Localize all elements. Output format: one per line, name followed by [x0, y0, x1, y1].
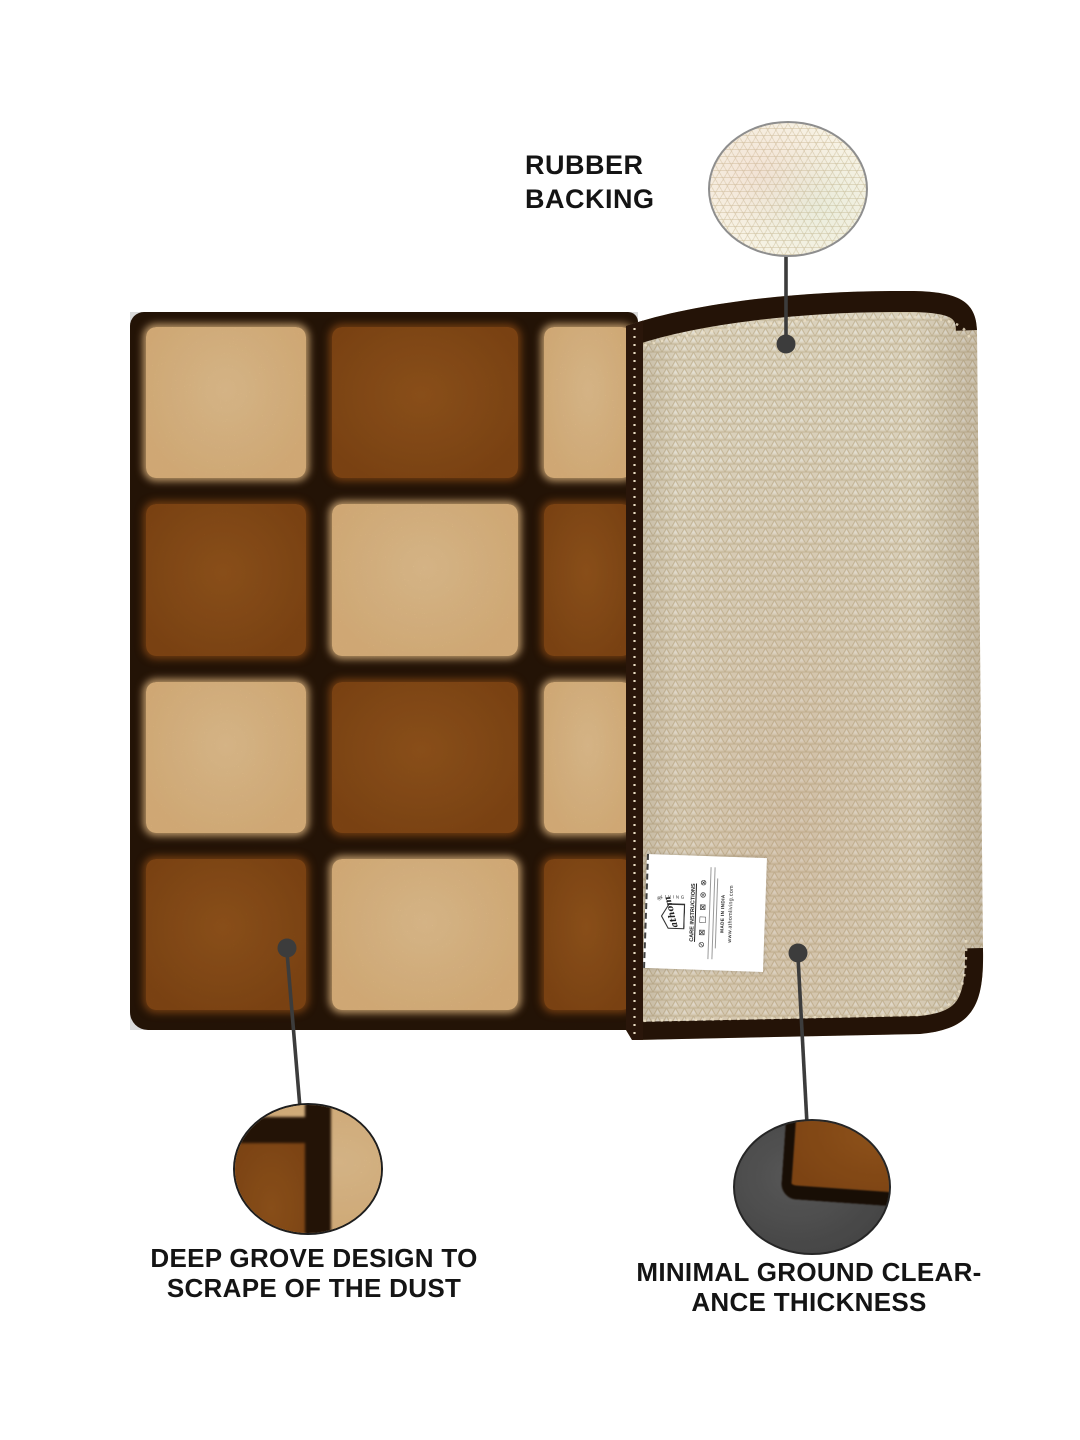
care-instructions-heading: CARE INSTRUCTIONS	[689, 883, 697, 942]
rubber-backing-line1: RUBBER	[525, 148, 655, 182]
mat-square-tan	[544, 327, 632, 478]
ground-clearance-caption-line1: MINIMAL GROUND CLEAR-	[613, 1257, 1005, 1287]
rubber-backing-zoom-circle	[708, 121, 868, 257]
mat-corner-piece	[781, 1119, 891, 1209]
horizontal-groove	[233, 1117, 313, 1143]
ground-clearance-caption-line2: ANCE THICKNESS	[613, 1287, 1005, 1317]
mat-square-tan	[332, 504, 518, 655]
mat-front-face	[130, 312, 638, 1030]
deep-groove-caption-line2: SCRAPE OF THE DUST	[118, 1273, 510, 1303]
house-logo-icon: athom ®	[660, 903, 685, 930]
mat-square-brown	[146, 504, 306, 655]
groove-closeup	[233, 1103, 383, 1235]
made-in-text: MADE IN INDIA	[720, 894, 726, 933]
mat-square-brown	[146, 859, 306, 1010]
deep-groove-zoom-circle	[233, 1103, 383, 1235]
deep-groove-caption: DEEP GROVE DESIGN TO SCRAPE OF THE DUST	[118, 1243, 510, 1303]
label-content: athom ® LIVING CARE INSTRUCTIONS ⊘ ⊠ □ ⊠…	[654, 859, 758, 966]
fine-print-line	[715, 878, 719, 948]
website-text: www.athomliving.com	[727, 885, 735, 943]
brand-logo: athom ® LIVING	[657, 894, 688, 930]
mat-square-brown	[544, 859, 632, 1010]
fold-edge-stripe	[626, 314, 643, 1040]
ground-clearance-zoom-circle	[733, 1119, 891, 1255]
vertical-groove	[305, 1103, 332, 1235]
doormat	[130, 288, 988, 1040]
mat-square-tan	[146, 682, 306, 833]
rubber-backing-label: RUBBER BACKING	[525, 148, 655, 216]
thickness-closeup	[733, 1119, 891, 1255]
ground-clearance-caption: MINIMAL GROUND CLEAR- ANCE THICKNESS	[613, 1257, 1005, 1317]
rubber-backing-line2: BACKING	[525, 182, 655, 216]
brand-care-label: athom ® LIVING CARE INSTRUCTIONS ⊘ ⊠ □ ⊠…	[643, 854, 767, 972]
registered-mark: ®	[657, 896, 663, 901]
mat-square-brown	[332, 682, 518, 833]
brown-pile-patch	[233, 1139, 310, 1235]
product-feature-image: RUBBER BACKING	[0, 0, 1080, 1440]
deep-groove-caption-line1: DEEP GROVE DESIGN TO	[118, 1243, 510, 1273]
mat-square-tan	[332, 859, 518, 1010]
laundry-care-icons: ⊘ ⊠ □ ⊠ ⊛ ⊗	[697, 878, 708, 949]
mat-square-brown	[332, 327, 518, 478]
mat-square-tan	[544, 682, 632, 833]
mat-square-brown	[544, 504, 632, 655]
mat-square-tan	[146, 327, 306, 478]
mat-front-grid	[146, 327, 632, 1010]
